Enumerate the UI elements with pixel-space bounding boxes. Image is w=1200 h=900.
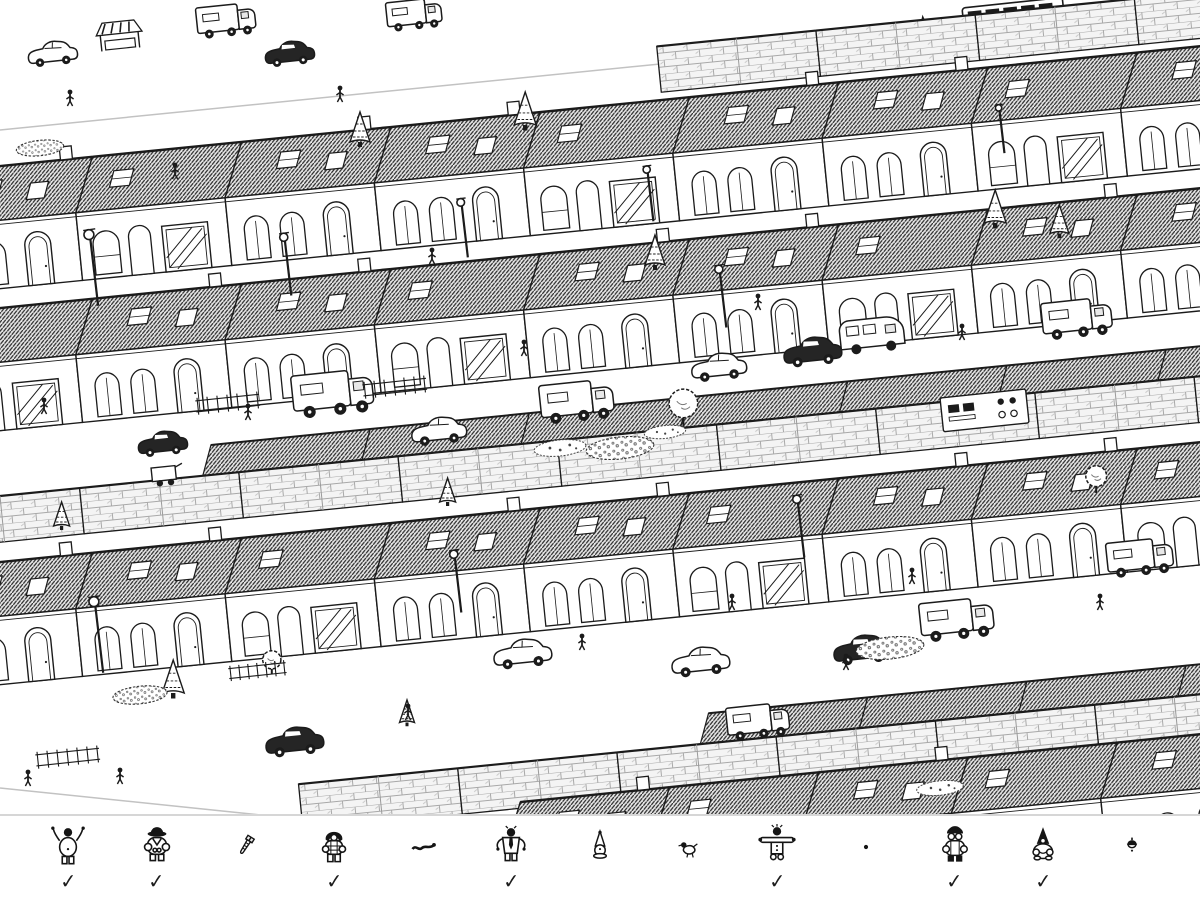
target-tie-person[interactable]: ✓ xyxy=(473,822,549,892)
glasses-person-icon xyxy=(934,824,976,870)
target-acorn[interactable] xyxy=(1094,822,1170,892)
target-dot[interactable] xyxy=(828,822,904,892)
found-checkmark xyxy=(599,870,601,892)
dot-icon xyxy=(845,824,887,870)
target-glasses-person[interactable]: ✓ xyxy=(917,822,993,892)
target-gnome[interactable] xyxy=(562,822,638,892)
target-cheering-person[interactable]: ✓ xyxy=(30,822,106,892)
found-checkmark xyxy=(245,870,247,892)
target-hooded-person[interactable]: ✓ xyxy=(296,822,372,892)
found-checkmark: ✓ xyxy=(59,869,77,892)
scene-artwork xyxy=(0,0,1200,814)
found-checkmark xyxy=(688,870,690,892)
tie-person-icon xyxy=(490,824,532,870)
worm-icon xyxy=(402,824,444,870)
gnome-icon xyxy=(579,824,621,870)
found-checkmark: ✓ xyxy=(945,869,963,892)
target-bird[interactable] xyxy=(651,822,727,892)
game-window: ✓ ✓ ✓ ✓ ✓ ✓ ✓ xyxy=(0,0,1200,900)
found-checkmark xyxy=(1131,870,1133,892)
target-hat-person[interactable]: ✓ xyxy=(119,822,195,892)
puzzle-scene[interactable] xyxy=(0,0,1200,814)
hooded-person-icon xyxy=(313,824,355,870)
target-arms-out-person[interactable]: ✓ xyxy=(739,822,815,892)
found-checkmark: ✓ xyxy=(768,869,786,892)
bird-icon xyxy=(668,824,710,870)
found-checkmark: ✓ xyxy=(325,869,343,892)
hat-person-icon xyxy=(136,824,178,870)
found-checkmark: ✓ xyxy=(148,869,166,892)
found-checkmark xyxy=(865,870,867,892)
target-screw[interactable] xyxy=(207,822,283,892)
found-checkmark: ✓ xyxy=(502,869,520,892)
pointed-hood-person-icon xyxy=(1022,824,1064,870)
arms-out-person-icon xyxy=(756,824,798,870)
found-checkmark xyxy=(422,870,424,892)
target-worm[interactable] xyxy=(385,822,461,892)
cheering-person-icon xyxy=(47,824,89,870)
screw-icon xyxy=(224,824,266,870)
targets-toolbar: ✓ ✓ ✓ ✓ ✓ ✓ ✓ xyxy=(0,814,1200,900)
found-checkmark: ✓ xyxy=(1034,869,1052,892)
acorn-icon xyxy=(1111,824,1153,870)
target-pointed-hood-person[interactable]: ✓ xyxy=(1005,822,1081,892)
